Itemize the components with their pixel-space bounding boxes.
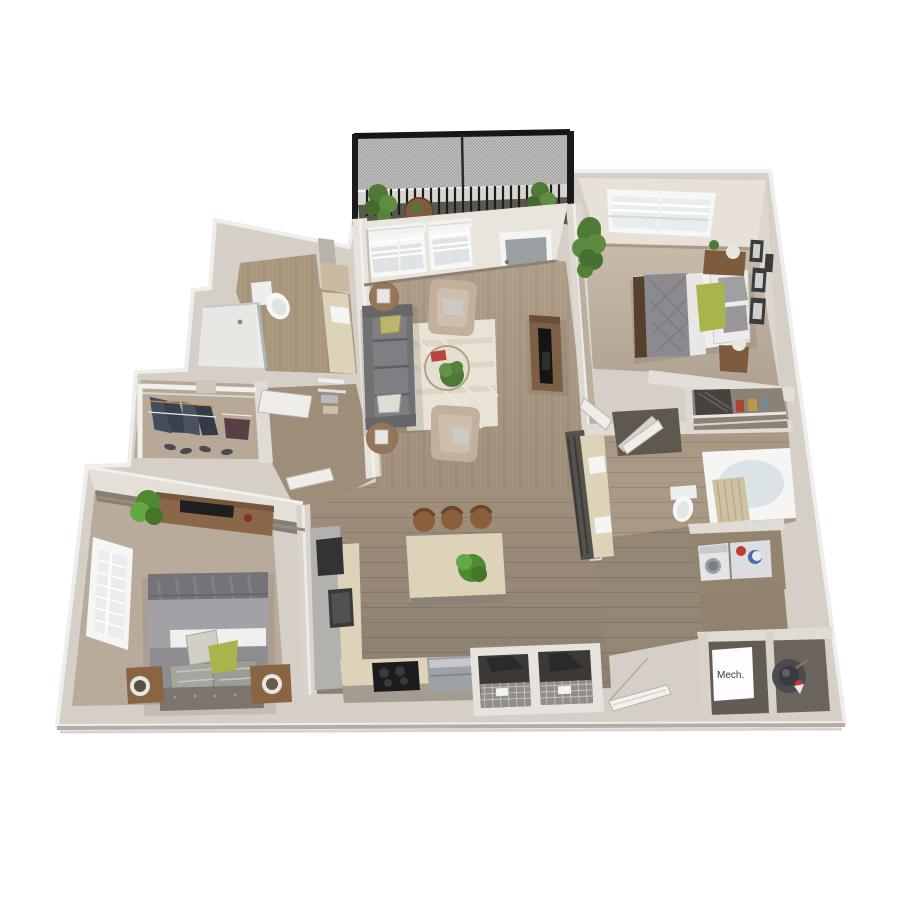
svg-text:Mech.: Mech. <box>717 670 744 681</box>
